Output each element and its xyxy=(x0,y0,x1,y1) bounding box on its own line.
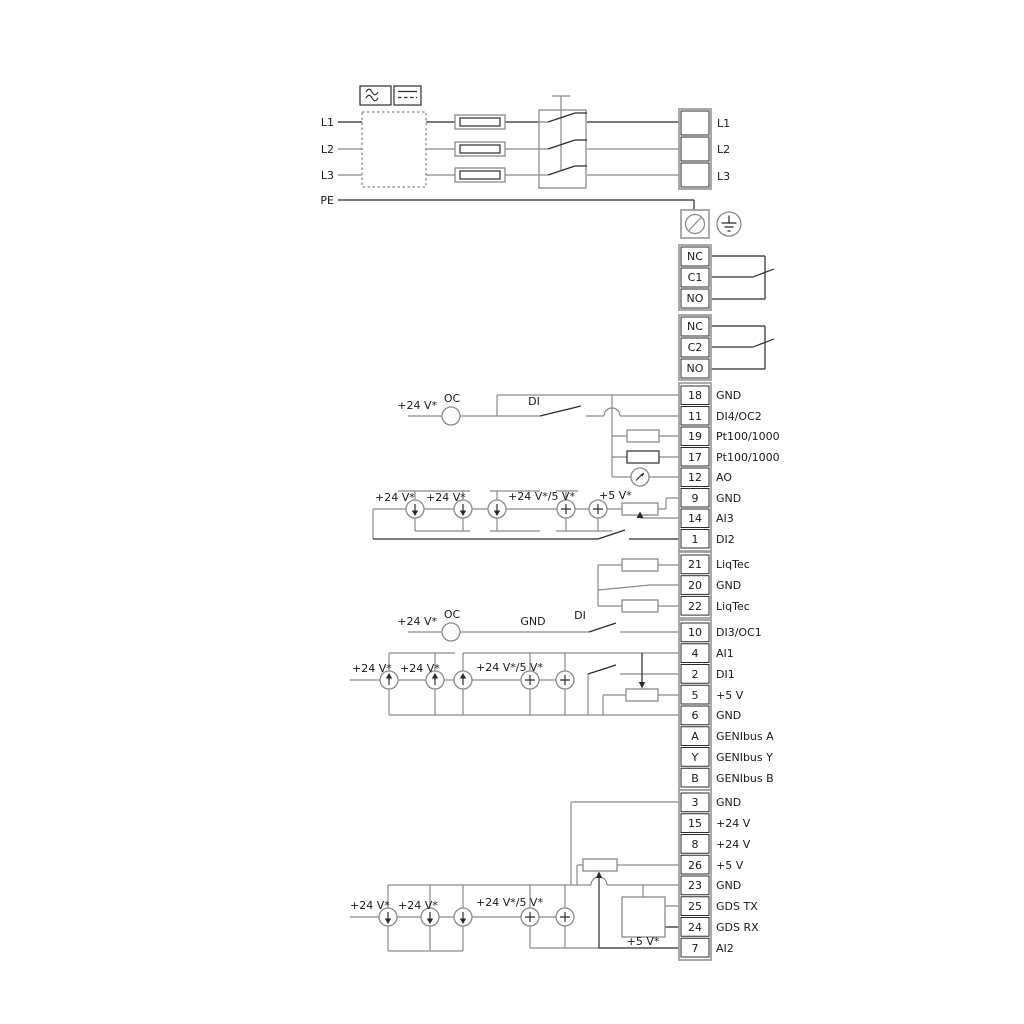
label-24v-5v: +24 V*/5 V* xyxy=(508,490,575,503)
terminal-number: 2 xyxy=(692,668,699,681)
terminal-number: 19 xyxy=(688,430,702,443)
relay1-nc: NC xyxy=(687,250,703,263)
terminal-name: Pt100/1000 xyxy=(716,430,780,443)
terminal-number: 3 xyxy=(692,796,699,809)
terminal-name: LiqTec xyxy=(716,600,750,613)
open-collector-icon xyxy=(442,407,460,425)
relay2-nc: NC xyxy=(687,320,703,333)
terminal-number: 21 xyxy=(688,558,702,571)
terminal-number: 1 xyxy=(692,533,699,546)
terminal-name: GND xyxy=(716,492,741,505)
terminal-number: 9 xyxy=(692,492,699,505)
terminal-number: 24 xyxy=(688,921,702,934)
wiring-diagram-page: L1 L2 L3 PE xyxy=(0,0,1024,1024)
label-24v: +24 V* xyxy=(398,899,438,912)
input-label-l1: L1 xyxy=(321,116,334,129)
pot-wiper-arrow xyxy=(596,872,602,879)
terminal-number: 4 xyxy=(692,647,699,660)
potentiometer-ai2 xyxy=(583,859,617,871)
terminal-name: GND xyxy=(716,796,741,809)
terminal-number: 10 xyxy=(688,626,702,639)
terminal-name: +24 V xyxy=(716,838,751,851)
label-24v: +24 V* xyxy=(375,491,415,504)
label-24v: +24 V* xyxy=(397,615,437,628)
io1-upper-wiring: +24 V* OC DI xyxy=(397,392,681,486)
relay2-section: NC C2 NO xyxy=(679,315,774,380)
terminal-name: GENIbus Y xyxy=(716,751,773,764)
terminal-name: Pt100/1000 xyxy=(716,451,780,464)
input-label-pe: PE xyxy=(320,194,334,207)
gds-sensor-module xyxy=(622,897,665,937)
label-gnd: GND xyxy=(520,615,545,628)
terminal-name: AI3 xyxy=(716,512,734,525)
label-5v: +5 V* xyxy=(599,489,632,502)
terminal-number: 18 xyxy=(688,389,702,402)
label-24v: +24 V* xyxy=(352,662,392,675)
terminal-number: 20 xyxy=(688,579,702,592)
terminal-name: GDS TX xyxy=(716,900,758,913)
terminal-number: 15 xyxy=(688,817,702,830)
current-source-icon xyxy=(488,500,506,518)
label-24v: +24 V* xyxy=(397,399,437,412)
voltage-source-icon xyxy=(521,908,539,926)
terminal-name: +5 V xyxy=(716,859,744,872)
main-disconnect-switch xyxy=(539,96,587,188)
potentiometer-ai1 xyxy=(626,689,658,701)
io3-wiring: +24 V* +24 V* +24 V*/5 V* +5 V* xyxy=(350,802,681,951)
terminal-number: 8 xyxy=(692,838,699,851)
terminal-name: GND xyxy=(716,709,741,722)
io1-lower-wiring: +24 V* +24 V* +24 V*/5 V* +5 V* xyxy=(373,489,681,539)
current-source-icon xyxy=(454,908,472,926)
terminal-name: GENIbus A xyxy=(716,730,774,743)
terminal-name: GENIbus B xyxy=(716,772,774,785)
terminal-strip-liqtec: 21 20 22 LiqTec GND LiqTec xyxy=(679,552,750,618)
terminal-number: B xyxy=(691,772,699,785)
open-collector-icon xyxy=(442,623,460,641)
voltage-source-icon xyxy=(556,908,574,926)
phase-wires xyxy=(338,122,694,210)
terminal-name: DI2 xyxy=(716,533,735,546)
label-di: DI xyxy=(574,609,586,622)
input-label-l2: L2 xyxy=(321,143,334,156)
terminal-number: 17 xyxy=(688,451,702,464)
relay1-no: NO xyxy=(687,292,704,305)
label-oc: OC xyxy=(444,608,461,621)
relay2-no: NO xyxy=(687,362,704,375)
terminal-name: GND xyxy=(716,579,741,592)
input-label-l3: L3 xyxy=(321,169,334,182)
power-input-section: L1 L2 L3 PE xyxy=(320,86,741,238)
fuse-l2 xyxy=(455,142,505,156)
terminal-name: DI1 xyxy=(716,668,735,681)
voltage-source-icon xyxy=(589,500,607,518)
voltage-source-icon xyxy=(556,671,574,689)
terminal-number: 22 xyxy=(688,600,702,613)
terminal-cell xyxy=(681,137,709,161)
terminal-name: DI3/OC1 xyxy=(716,626,762,639)
analog-output-meter-icon xyxy=(631,468,649,486)
fuse-l1 xyxy=(455,115,505,129)
terminal-number: 6 xyxy=(692,709,699,722)
resistor-liqtec-21 xyxy=(622,559,658,571)
io2-wiring: +24 V* +24 V* +24 V*/5 V* xyxy=(350,653,681,715)
terminal-name: GND xyxy=(716,389,741,402)
terminal-cell xyxy=(681,111,709,135)
terminal-strip-io3: 3 15 8 26 23 25 24 7 GND +24 V +24 V +5 … xyxy=(679,790,759,960)
pot-wiper-arrow xyxy=(639,682,645,689)
terminal-name: +24 V xyxy=(716,817,751,830)
terminal-name: +5 V xyxy=(716,689,744,702)
terminal-number: 26 xyxy=(688,859,702,872)
mains-terminal-block: L1 L2 L3 xyxy=(679,109,730,189)
terminal-cell xyxy=(681,163,709,187)
terminal-number: 23 xyxy=(688,879,702,892)
terminal-number: 7 xyxy=(692,942,699,955)
terminal-name: AI2 xyxy=(716,942,734,955)
pe-screw-terminal xyxy=(681,210,709,238)
terminal-number: 12 xyxy=(688,471,702,484)
label-oc: OC xyxy=(444,392,461,405)
terminal-name: GND xyxy=(716,879,741,892)
terminal-number: 25 xyxy=(688,900,702,913)
terminal-strip-io2: 10 4 2 5 6 A Y B DI3/OC1 AI1 DI1 +5 V GN… xyxy=(679,620,774,790)
resistor-pt100-19 xyxy=(627,430,659,442)
terminal-name: GDS RX xyxy=(716,921,759,934)
label-di: DI xyxy=(528,395,540,408)
terminal-number: 11 xyxy=(688,410,702,423)
resistor-liqtec-22 xyxy=(622,600,658,612)
terminal-number: A xyxy=(691,730,699,743)
output-label-l1: L1 xyxy=(717,117,730,130)
terminal-name: LiqTec xyxy=(716,558,750,571)
terminal-number: 5 xyxy=(692,689,699,702)
resistor-pt100-17 xyxy=(627,451,659,463)
terminal-number: 14 xyxy=(688,512,702,525)
label-24v-5v: +24 V*/5 V* xyxy=(476,896,543,909)
label-24v-5v: +24 V*/5 V* xyxy=(476,661,543,674)
terminal-strip-io1: 18 11 19 17 12 9 14 1 GND DI4/OC2 Pt100/… xyxy=(679,383,780,551)
relay1-c1: C1 xyxy=(688,271,703,284)
output-label-l2: L2 xyxy=(717,143,730,156)
frequency-converter-box xyxy=(360,86,426,187)
output-label-l3: L3 xyxy=(717,170,730,183)
terminal-name: AI1 xyxy=(716,647,734,660)
relay2-c2: C2 xyxy=(688,341,703,354)
current-source-icon xyxy=(454,671,472,689)
label-24v: +24 V* xyxy=(426,491,466,504)
terminal-name: DI4/OC2 xyxy=(716,410,762,423)
fuse-l3 xyxy=(455,168,505,182)
liqtec-wiring xyxy=(598,559,681,612)
relay1-section: NC C1 NO xyxy=(679,245,774,310)
terminal-name: AO xyxy=(716,471,732,484)
di3-oc1-wiring: +24 V* OC GND DI xyxy=(397,608,681,641)
label-24v: +24 V* xyxy=(400,662,440,675)
earth-ground-icon xyxy=(717,212,741,236)
label-24v: +24 V* xyxy=(350,899,390,912)
terminal-number: Y xyxy=(691,751,699,764)
wiring-diagram-canvas: L1 L2 L3 PE xyxy=(0,0,1024,1024)
label-5v: +5 V* xyxy=(627,935,660,948)
